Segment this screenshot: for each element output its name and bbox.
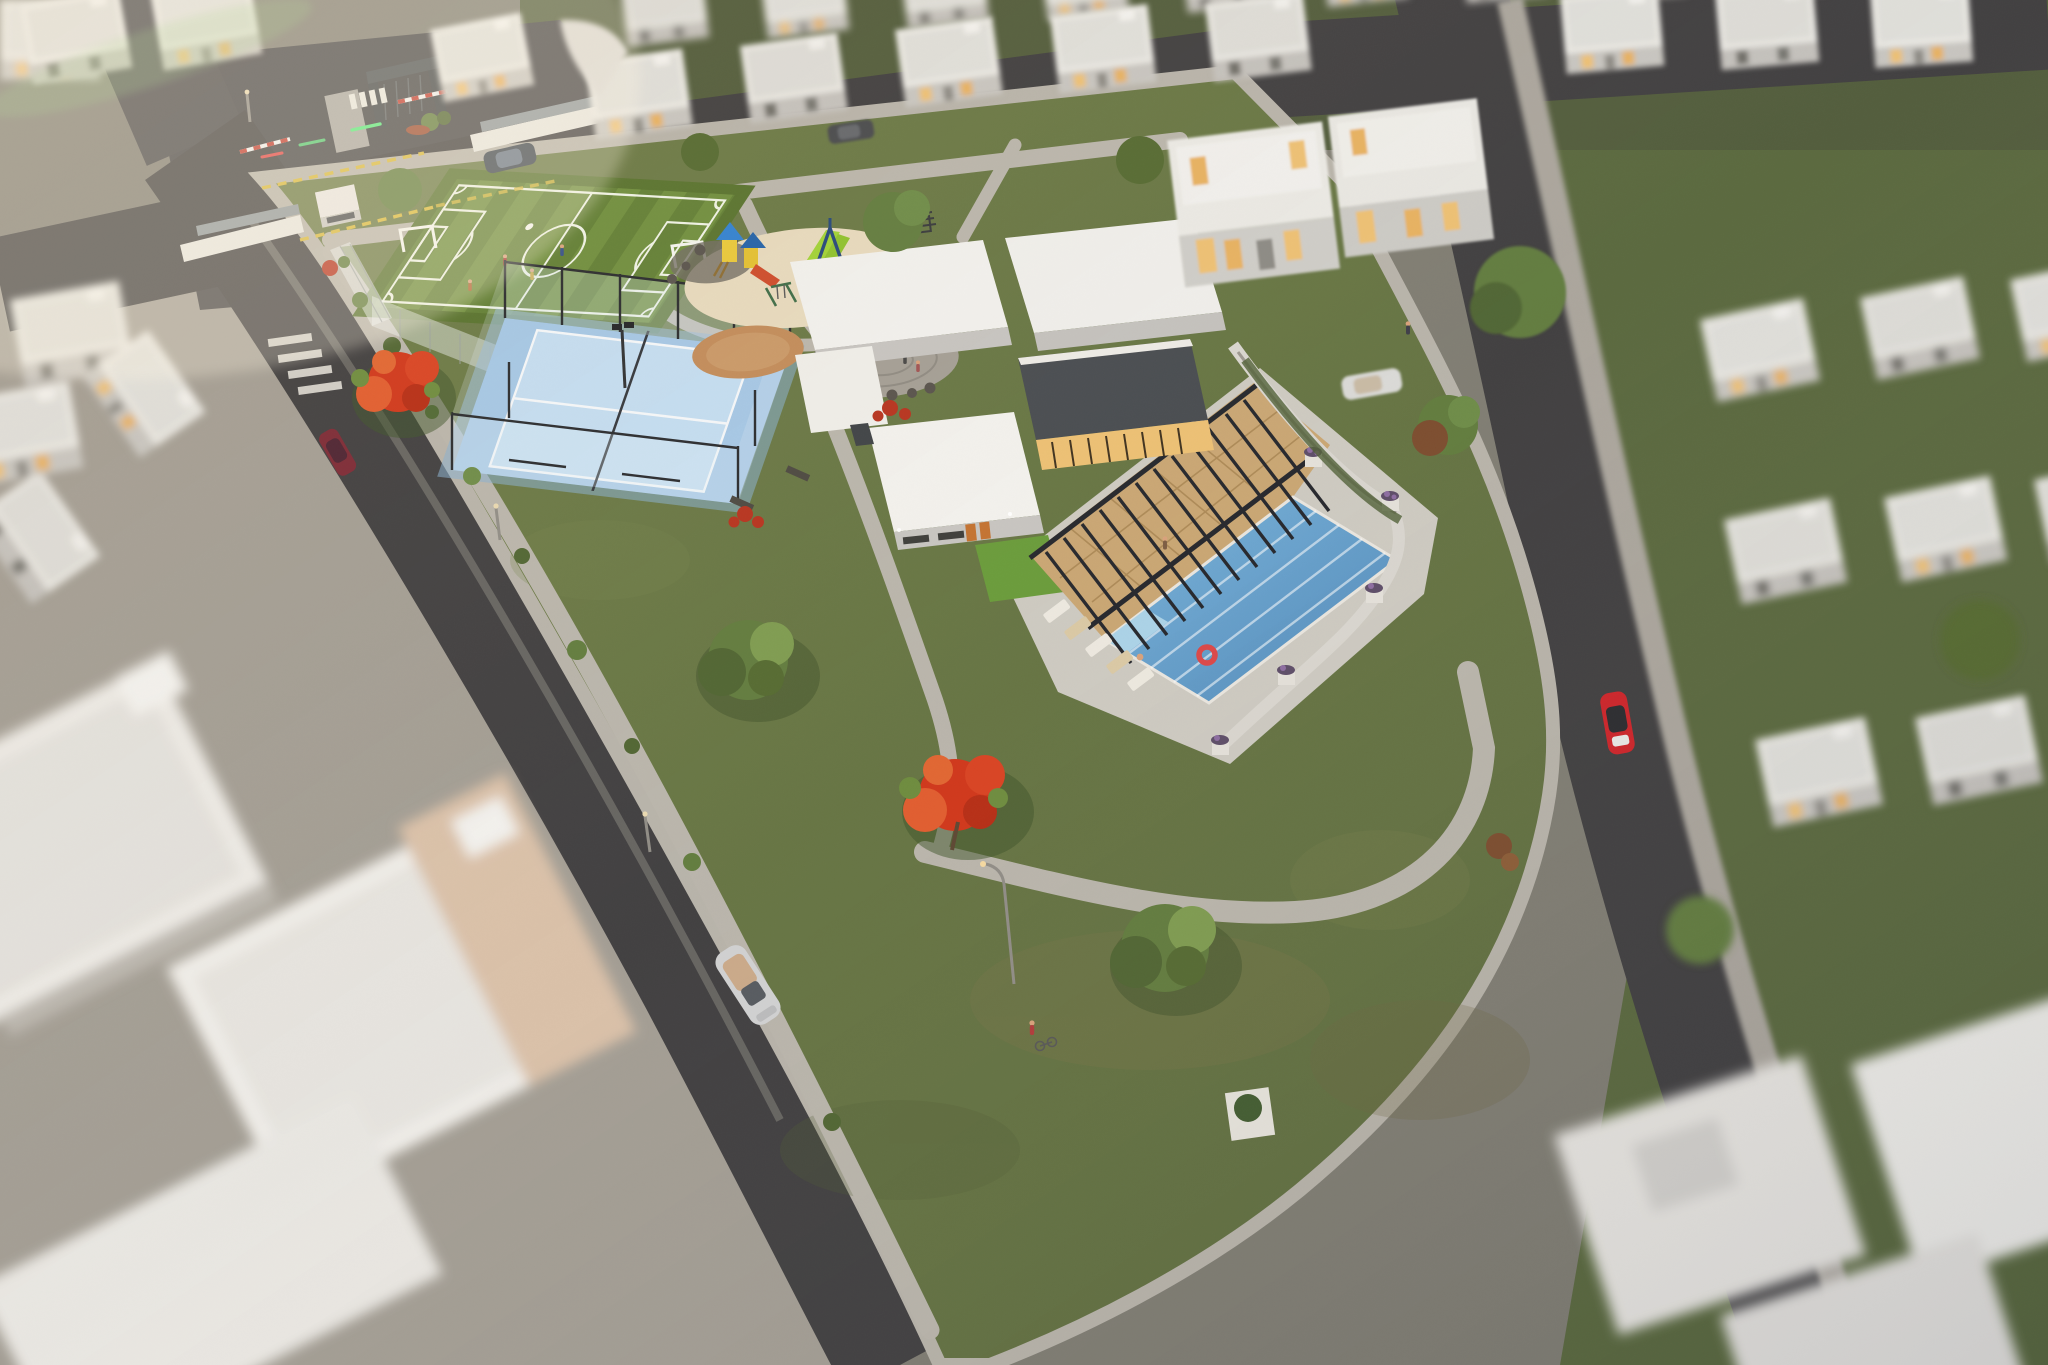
film-grain	[0, 0, 2048, 1365]
scene-svg	[0, 0, 2048, 1365]
aerial-render	[0, 0, 2048, 1365]
